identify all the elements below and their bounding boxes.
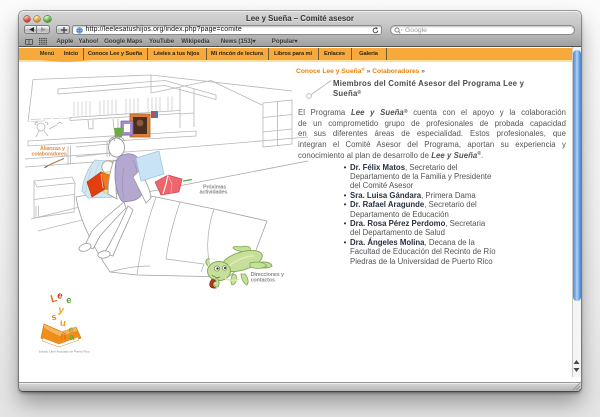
svg-text:e: e [65,295,72,307]
svg-text:actividades: actividades [200,189,228,195]
svg-text:u: u [59,318,67,330]
svg-text:s: s [51,312,58,323]
svg-text:ñ: ñ [60,331,67,343]
svg-text:y: y [57,305,65,317]
svg-text:colaboradores: colaboradores [32,152,67,158]
svg-text:Estado Libre Asociado de Puert: Estado Libre Asociado de Puerto Rico [39,350,90,354]
svg-text:contactos: contactos [251,278,275,284]
svg-text:e: e [56,290,63,302]
